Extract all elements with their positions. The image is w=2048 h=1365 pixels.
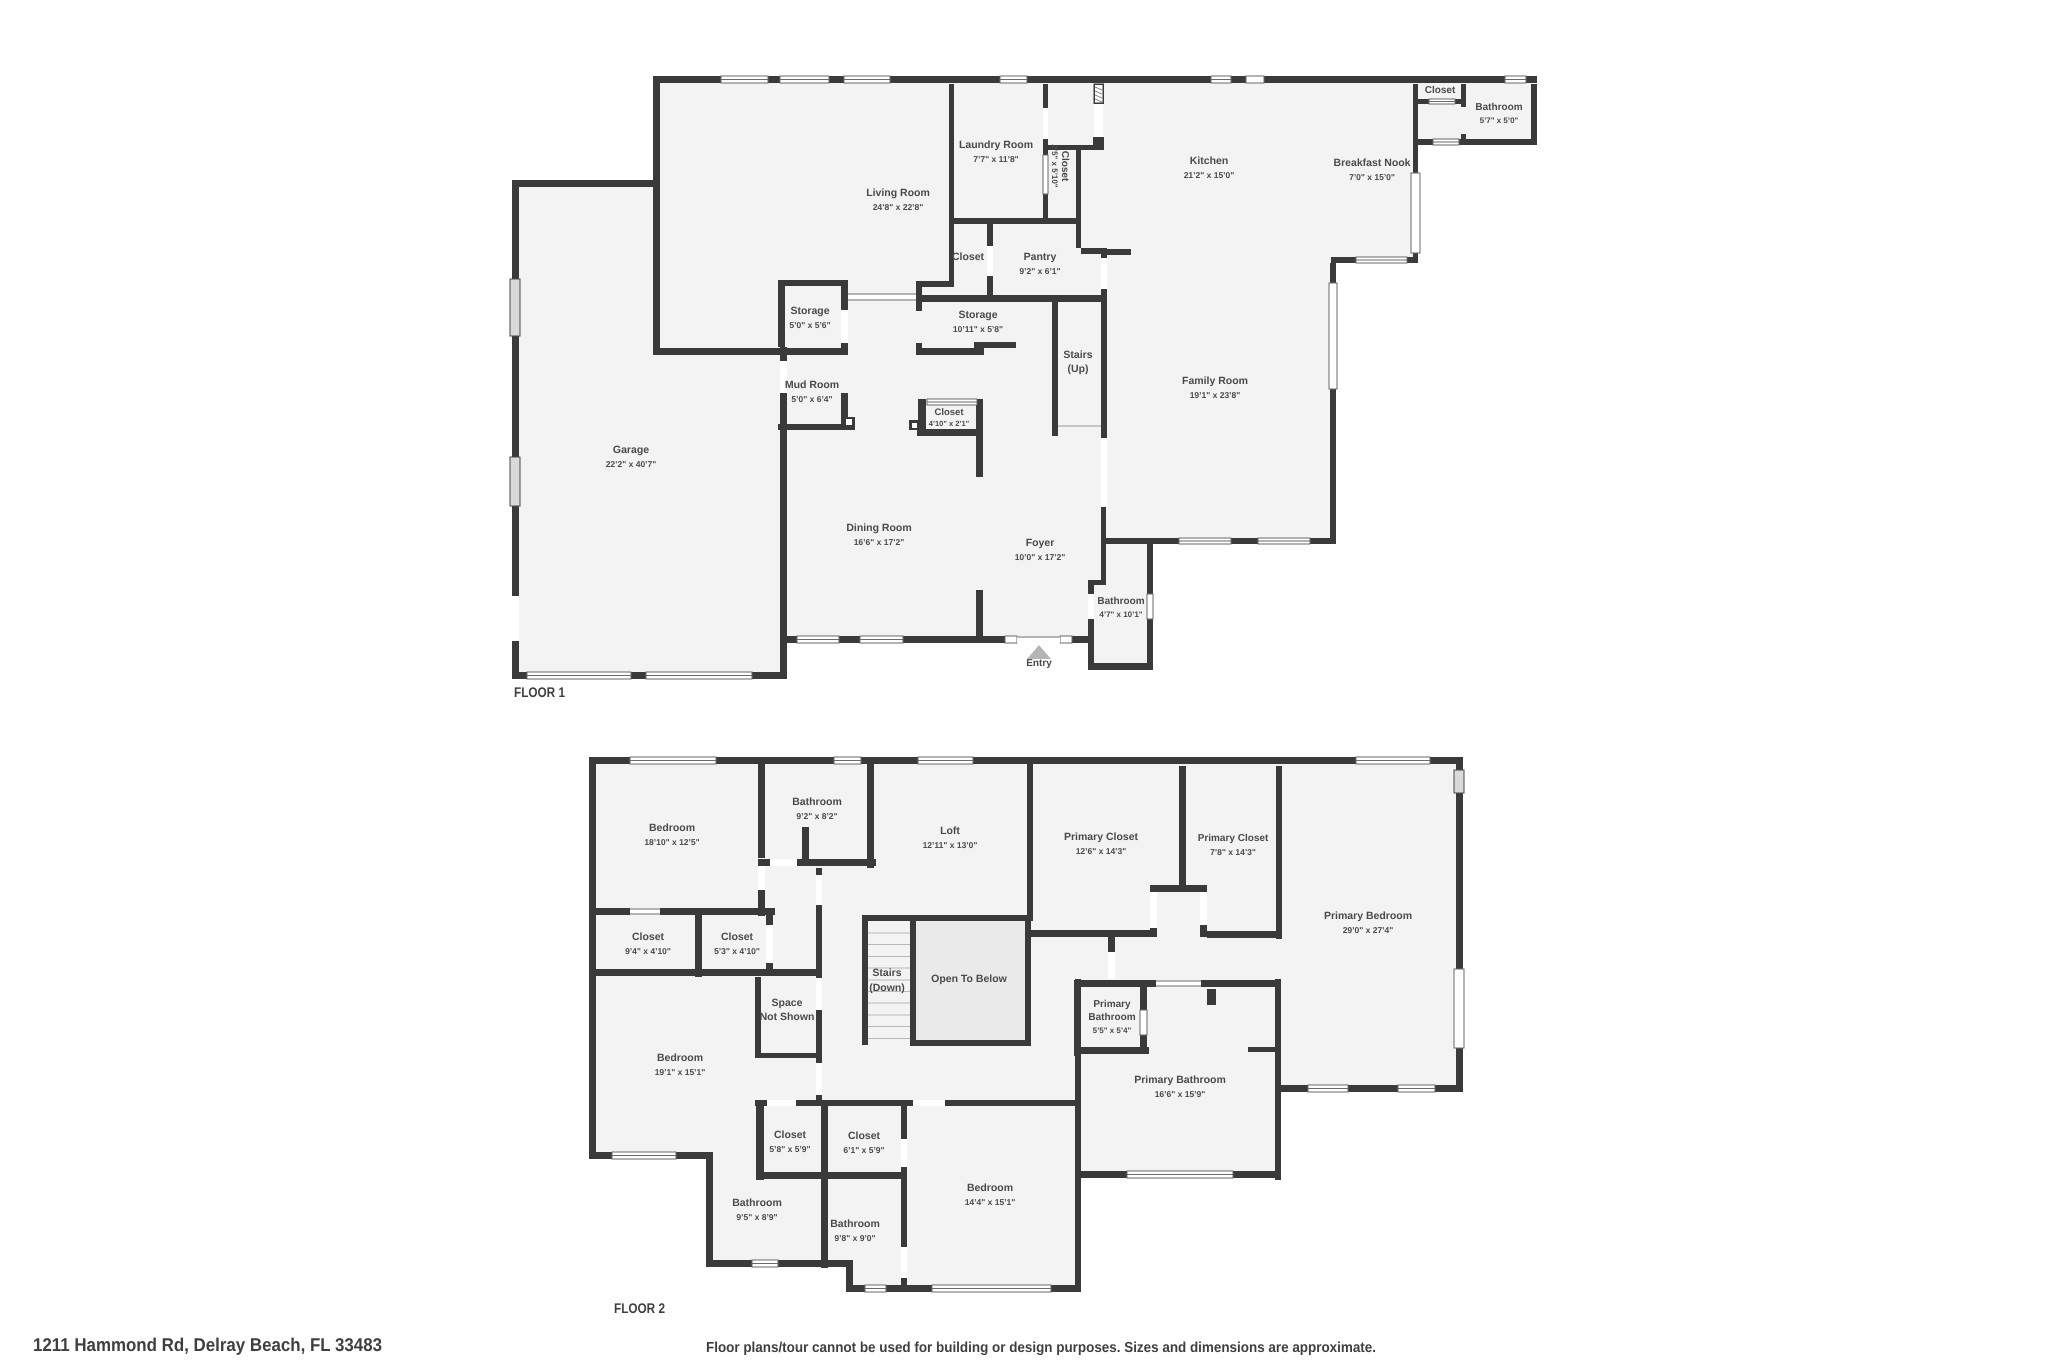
svg-text:14’4" x 15’1": 14’4" x 15’1" (965, 1197, 1016, 1207)
svg-text:Primary: Primary (1093, 999, 1131, 1010)
svg-text:Primary Closet: Primary Closet (1064, 831, 1139, 843)
svg-text:9’8" x 9’0": 9’8" x 9’0" (834, 1233, 875, 1243)
svg-text:Floor plans/tour cannot be use: Floor plans/tour cannot be used for buil… (706, 1340, 1376, 1356)
svg-text:7’8" x 14’3": 7’8" x 14’3" (1210, 847, 1256, 857)
svg-text:Closet: Closet (774, 1129, 807, 1141)
svg-text:7’7" x 11’8": 7’7" x 11’8" (973, 154, 1018, 164)
svg-text:Loft: Loft (940, 825, 960, 837)
svg-text:21’2" x 15’0": 21’2" x 15’0" (1184, 170, 1235, 180)
svg-text:19’1" x 15’1": 19’1" x 15’1" (655, 1067, 706, 1077)
svg-text:Closet: Closet (952, 251, 985, 263)
svg-text:Bathroom: Bathroom (1475, 102, 1522, 113)
svg-text:12’11" x 13’0": 12’11" x 13’0" (923, 840, 978, 850)
svg-text:Closet: Closet (934, 407, 964, 418)
svg-text:Primary Bedroom: Primary Bedroom (1324, 910, 1412, 922)
svg-text:6’1" x 5’9": 6’1" x 5’9" (843, 1145, 884, 1155)
svg-text:Stairs: Stairs (1063, 349, 1092, 361)
svg-text:10’0" x 17’2": 10’0" x 17’2" (1015, 552, 1066, 562)
svg-text:Dining Room: Dining Room (846, 522, 911, 534)
svg-text:FLOOR 2: FLOOR 2 (614, 1300, 665, 1316)
svg-text:29’0" x 27’4": 29’0" x 27’4" (1343, 925, 1394, 935)
svg-text:5’0" x 5’6": 5’0" x 5’6" (789, 320, 830, 330)
svg-text:5’8" x 5’9": 5’8" x 5’9" (769, 1144, 810, 1154)
svg-text:Entry: Entry (1026, 658, 1052, 669)
svg-text:Closet: Closet (632, 931, 665, 943)
svg-text:Bathroom: Bathroom (830, 1218, 880, 1230)
svg-text:Stairs: Stairs (872, 967, 901, 979)
svg-text:Garage: Garage (613, 444, 649, 456)
svg-text:5’3" x 4’10": 5’3" x 4’10" (714, 946, 760, 956)
svg-text:19’1" x 23’8": 19’1" x 23’8" (1190, 390, 1241, 400)
svg-text:10’11" x 5’8": 10’11" x 5’8" (953, 324, 1003, 334)
svg-text:Space: Space (772, 997, 803, 1009)
svg-text:(Down): (Down) (869, 982, 905, 994)
svg-text:Laundry Room: Laundry Room (959, 139, 1033, 151)
svg-text:Closet: Closet (721, 931, 754, 943)
svg-text:5’5" x 5’4": 5’5" x 5’4" (1093, 1026, 1132, 1035)
svg-text:9’4" x 4’10": 9’4" x 4’10" (625, 946, 671, 956)
svg-text:Bedroom: Bedroom (657, 1052, 703, 1064)
svg-text:Kitchen: Kitchen (1190, 155, 1229, 167)
svg-text:Breakfast Nook: Breakfast Nook (1333, 157, 1410, 169)
svg-text:Foyer: Foyer (1026, 537, 1055, 549)
svg-text:4’7" x 10’1": 4’7" x 10’1" (1099, 610, 1142, 619)
svg-text:Bathroom: Bathroom (1088, 1012, 1135, 1023)
svg-text:Bathroom: Bathroom (792, 796, 842, 808)
svg-text:Open To Below: Open To Below (931, 973, 1007, 985)
svg-text:9’2" x 8’2": 9’2" x 8’2" (796, 811, 837, 821)
svg-text:Mud Room: Mud Room (785, 379, 839, 391)
svg-text:Bathroom: Bathroom (732, 1197, 782, 1209)
svg-text:5’7" x 5’0": 5’7" x 5’0" (1480, 116, 1519, 125)
svg-text:9’2" x 6’1": 9’2" x 6’1" (1019, 266, 1060, 276)
svg-text:4’10" x 2’1": 4’10" x 2’1" (929, 419, 970, 428)
svg-text:16’6" x 17’2": 16’6" x 17’2" (854, 537, 905, 547)
svg-text:Living Room: Living Room (866, 187, 930, 199)
svg-text:Bedroom: Bedroom (967, 1182, 1013, 1194)
svg-text:1211 Hammond Rd, Delray Beach,: 1211 Hammond Rd, Delray Beach, FL 33483 (33, 1334, 382, 1355)
svg-text:Closet: Closet (1425, 85, 1456, 96)
svg-text:9’5" x 8’9": 9’5" x 8’9" (736, 1212, 777, 1222)
svg-text:Closet: Closet (1059, 151, 1070, 182)
svg-text:12’6" x 14’3": 12’6" x 14’3" (1076, 846, 1127, 856)
svg-text:Not Shown: Not Shown (760, 1011, 815, 1023)
svg-text:Bathroom: Bathroom (1097, 596, 1144, 607)
svg-text:FLOOR 1: FLOOR 1 (514, 684, 565, 700)
svg-text:Pantry: Pantry (1024, 251, 1057, 263)
svg-text:18’10" x 12’5": 18’10" x 12’5" (644, 837, 699, 847)
svg-text:5’0" x 6’4": 5’0" x 6’4" (791, 394, 832, 404)
svg-text:24’8" x 22’8": 24’8" x 22’8" (873, 202, 924, 212)
svg-text:(Up): (Up) (1068, 363, 1089, 375)
svg-text:Family Room: Family Room (1182, 375, 1248, 387)
svg-text:Primary Closet: Primary Closet (1198, 833, 1269, 844)
svg-text:16’6" x 15’9": 16’6" x 15’9" (1155, 1089, 1206, 1099)
svg-text:Closet: Closet (848, 1130, 881, 1142)
svg-text:Storage: Storage (958, 309, 997, 321)
svg-text:Primary Bathroom: Primary Bathroom (1134, 1074, 1226, 1086)
svg-text:2’5" x 5’10": 2’5" x 5’10" (1050, 144, 1059, 187)
svg-text:7’0" x 15’0": 7’0" x 15’0" (1349, 172, 1395, 182)
svg-text:Storage: Storage (790, 305, 829, 317)
svg-text:22’2" x 40’7": 22’2" x 40’7" (606, 459, 657, 469)
svg-text:Bedroom: Bedroom (649, 822, 695, 834)
